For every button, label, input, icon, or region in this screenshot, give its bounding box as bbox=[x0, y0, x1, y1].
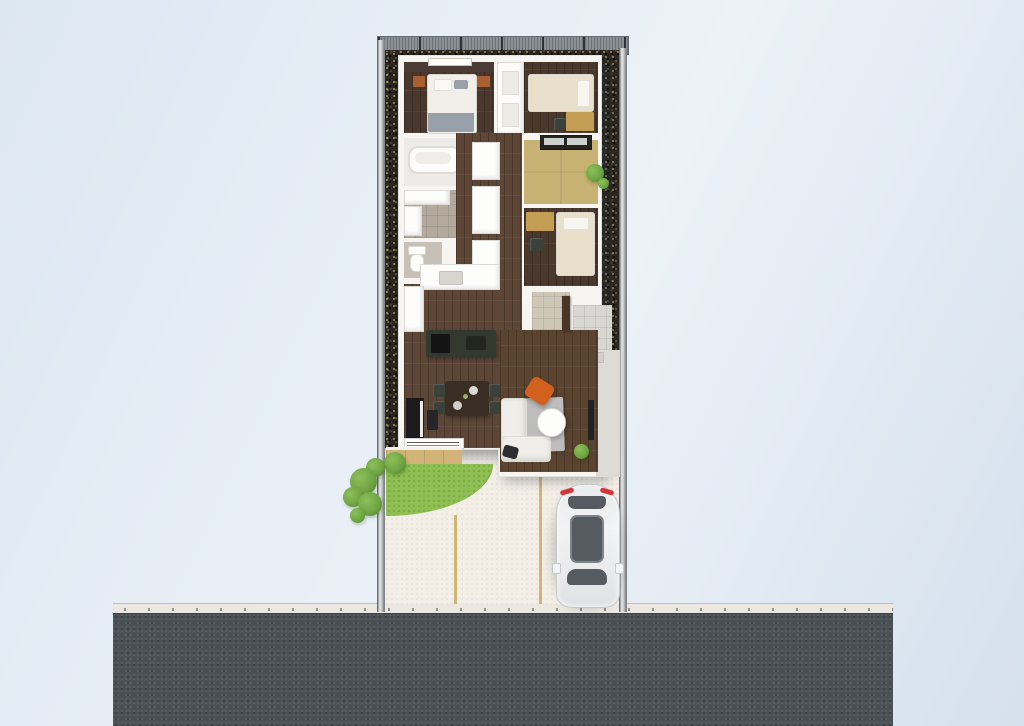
closet-shelf bbox=[502, 103, 519, 127]
closet-shelf bbox=[502, 71, 519, 95]
pillow bbox=[577, 80, 590, 107]
car-windshield bbox=[567, 569, 607, 585]
pillow bbox=[434, 79, 452, 91]
door-track bbox=[407, 445, 459, 446]
car bbox=[556, 484, 620, 608]
potted-plant bbox=[574, 444, 589, 459]
double-bed bbox=[427, 74, 477, 134]
car-roof-glass bbox=[570, 515, 604, 563]
gravel-plant bbox=[598, 178, 609, 189]
piano-bench bbox=[427, 410, 438, 430]
parking-line bbox=[454, 515, 457, 604]
entrance-walkway bbox=[596, 350, 620, 477]
boundary-wall-left bbox=[377, 40, 385, 612]
hallway-closet bbox=[472, 186, 500, 234]
car-rear-window bbox=[568, 496, 606, 509]
floor-plan-render bbox=[0, 0, 1024, 726]
kitchen-tall-cabinet bbox=[404, 286, 424, 332]
desk bbox=[566, 112, 594, 131]
closet bbox=[497, 62, 524, 135]
car-mirror bbox=[615, 563, 624, 574]
pillow bbox=[454, 80, 468, 89]
island-sink bbox=[466, 336, 486, 350]
hallway-closet bbox=[472, 142, 500, 180]
single-bed bbox=[556, 212, 595, 276]
upright-piano bbox=[406, 398, 424, 440]
bathtub bbox=[408, 146, 462, 174]
desk-chair bbox=[554, 118, 566, 130]
kitchen-counter bbox=[420, 264, 500, 290]
garden-bush bbox=[350, 508, 365, 523]
window-pane bbox=[544, 138, 564, 145]
car-mirror bbox=[552, 563, 561, 574]
desk-chair bbox=[530, 238, 543, 251]
window-pane bbox=[567, 138, 587, 145]
plate bbox=[469, 386, 478, 395]
tv-panel bbox=[588, 400, 594, 440]
bed-throw-blanket bbox=[428, 113, 474, 132]
bathtub-basin bbox=[415, 152, 451, 164]
pillow bbox=[563, 217, 589, 230]
piano-keys bbox=[420, 401, 423, 437]
plate bbox=[453, 401, 462, 410]
tatami-window bbox=[540, 135, 592, 150]
front-door bbox=[562, 296, 570, 332]
dining-table bbox=[445, 381, 489, 416]
garden-bush bbox=[384, 452, 406, 474]
table-vase bbox=[463, 394, 468, 399]
washing-machine bbox=[404, 206, 422, 236]
parking-line bbox=[539, 477, 542, 604]
road bbox=[113, 613, 893, 726]
kitchen-island bbox=[426, 330, 496, 357]
dining-chair bbox=[433, 384, 445, 397]
single-bed bbox=[528, 74, 594, 112]
cooktop bbox=[431, 334, 450, 353]
coffee-table bbox=[537, 408, 566, 437]
master-window bbox=[428, 58, 472, 66]
desk bbox=[526, 212, 554, 231]
nightstand bbox=[477, 76, 490, 87]
door-track bbox=[407, 442, 459, 443]
nightstand bbox=[413, 76, 425, 87]
washroom-vanity bbox=[404, 190, 450, 205]
kitchen-sink bbox=[439, 271, 463, 285]
